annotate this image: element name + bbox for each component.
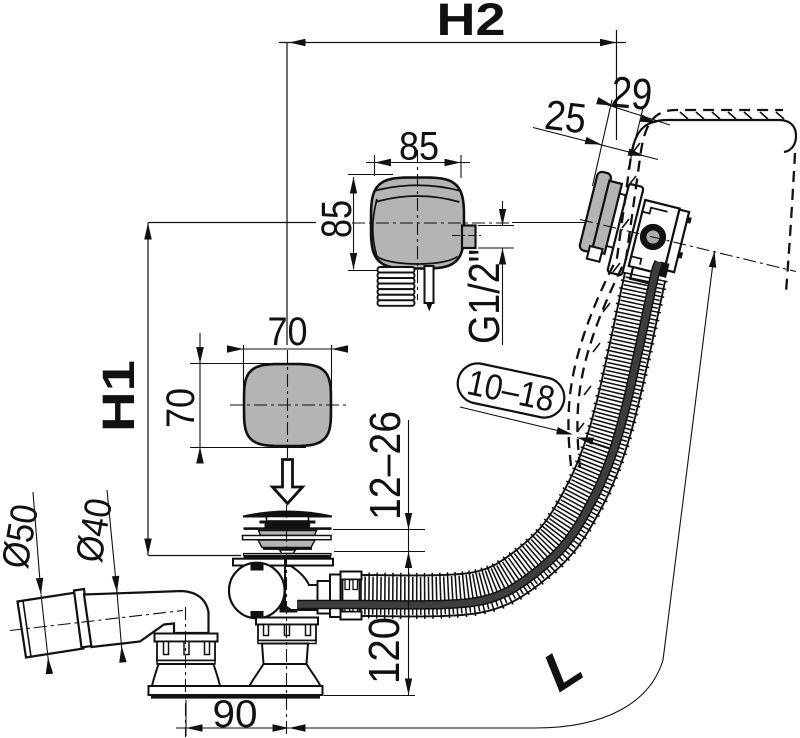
svg-text:29: 29 — [609, 68, 654, 120]
svg-text:G1/2": G1/2" — [460, 249, 509, 344]
svg-text:70: 70 — [268, 310, 308, 354]
svg-text:H2: H2 — [437, 0, 506, 45]
svg-text:120: 120 — [360, 617, 409, 684]
svg-text:85: 85 — [399, 125, 439, 169]
svg-text:90: 90 — [213, 693, 258, 736]
svg-text:85: 85 — [313, 200, 361, 238]
svg-text:H1: H1 — [93, 360, 144, 432]
svg-text:25: 25 — [542, 91, 588, 143]
svg-text:70: 70 — [159, 388, 203, 428]
svg-text:12–26: 12–26 — [361, 411, 410, 520]
